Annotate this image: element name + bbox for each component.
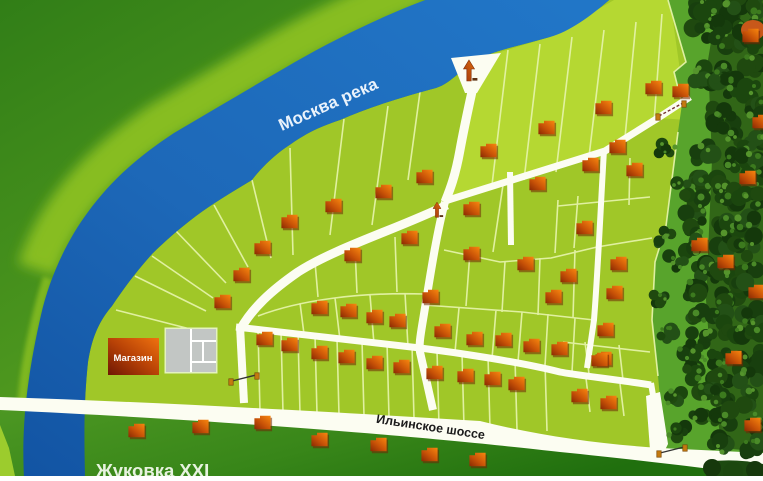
svg-text:Жуковка XXI: Жуковка XXI — [95, 460, 209, 476]
svg-text:Магазин: Магазин — [114, 353, 153, 364]
